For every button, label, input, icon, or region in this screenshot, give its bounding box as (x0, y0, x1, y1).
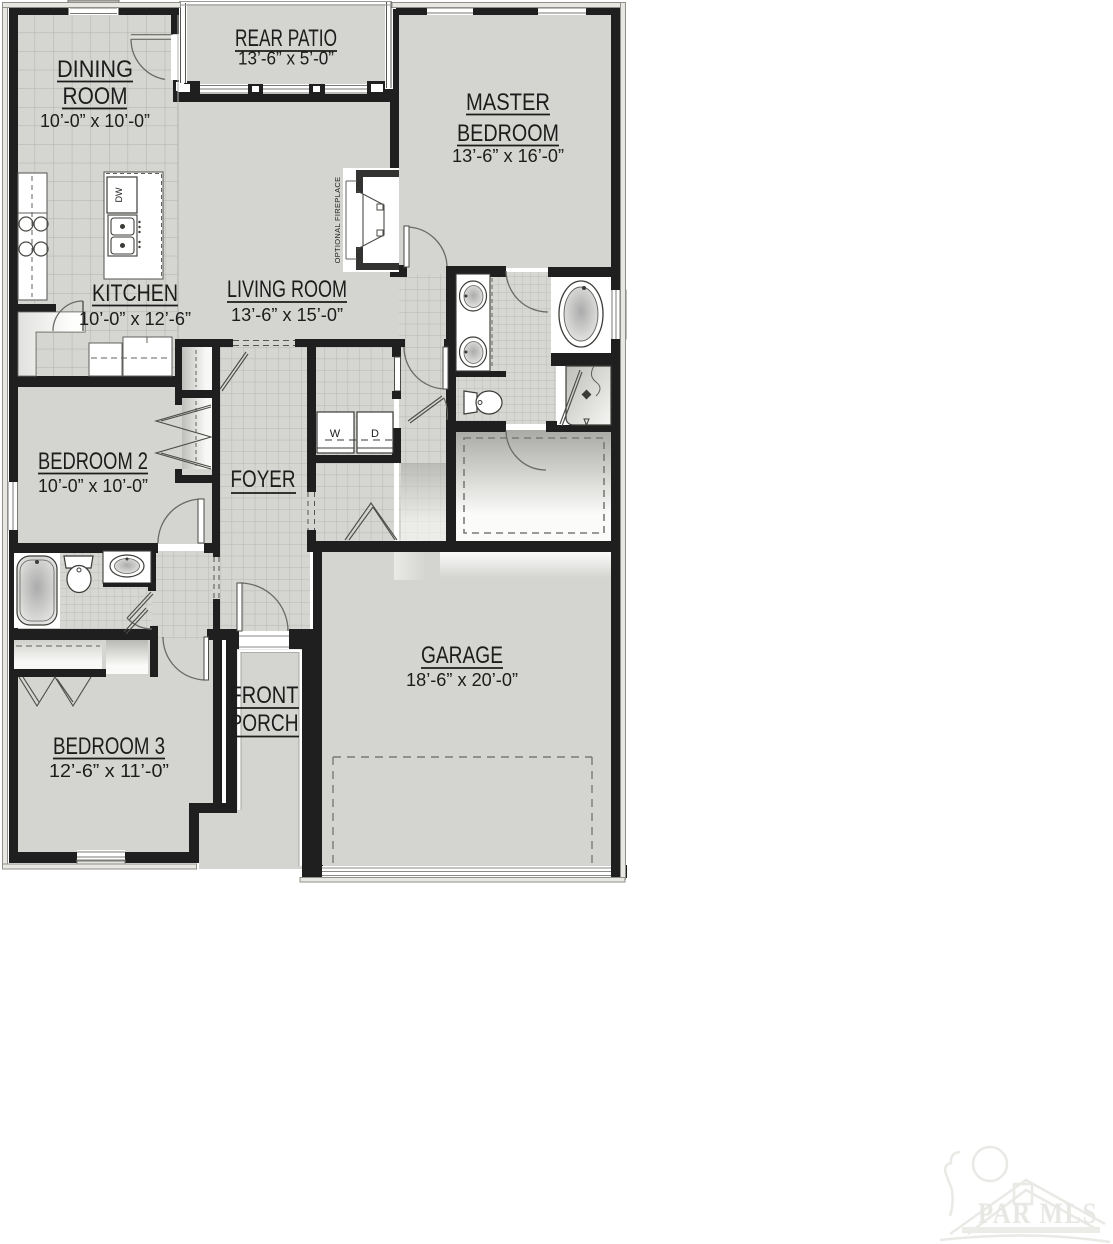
svg-text:FOYER: FOYER (231, 466, 296, 493)
svg-text:PORCH: PORCH (230, 710, 299, 737)
svg-text:LIVING ROOM: LIVING ROOM (227, 276, 347, 303)
svg-text:13’-6” x 15’-0”: 13’-6” x 15’-0” (231, 305, 343, 325)
svg-text:MASTER: MASTER (466, 89, 550, 116)
svg-text:13’-6” x 16’-0”: 13’-6” x 16’-0” (452, 146, 564, 166)
svg-text:DW: DW (114, 187, 124, 202)
svg-text:BEDROOM 3: BEDROOM 3 (53, 733, 165, 760)
svg-text:BEDROOM 2: BEDROOM 2 (38, 448, 148, 475)
svg-text:OPTIONAL FIREPLACE: OPTIONAL FIREPLACE (333, 177, 342, 264)
svg-text:GARAGE: GARAGE (421, 642, 503, 669)
svg-text:KITCHEN: KITCHEN (92, 280, 178, 307)
svg-text:10’-0” x 12’-6”: 10’-0” x 12’-6” (79, 309, 191, 329)
svg-text:FRONT: FRONT (230, 682, 299, 709)
svg-text:10’-0” x 10’-0”: 10’-0” x 10’-0” (40, 111, 150, 131)
svg-text:W: W (330, 428, 341, 440)
svg-text:D: D (371, 428, 379, 440)
svg-text:DINING: DINING (57, 56, 133, 83)
svg-text:10’-0” x 10’-0”: 10’-0” x 10’-0” (38, 476, 148, 496)
svg-text:BEDROOM: BEDROOM (457, 120, 559, 147)
svg-text:18’-6” x 20’-0”: 18’-6” x 20’-0” (406, 670, 518, 690)
svg-text:13’-6” x 5’-0”: 13’-6” x 5’-0” (238, 49, 334, 69)
svg-text:ROOM: ROOM (63, 83, 128, 110)
svg-text:PAR MLS: PAR MLS (978, 1197, 1098, 1230)
svg-text:12’-6” x 11’-0”: 12’-6” x 11’-0” (49, 761, 169, 781)
